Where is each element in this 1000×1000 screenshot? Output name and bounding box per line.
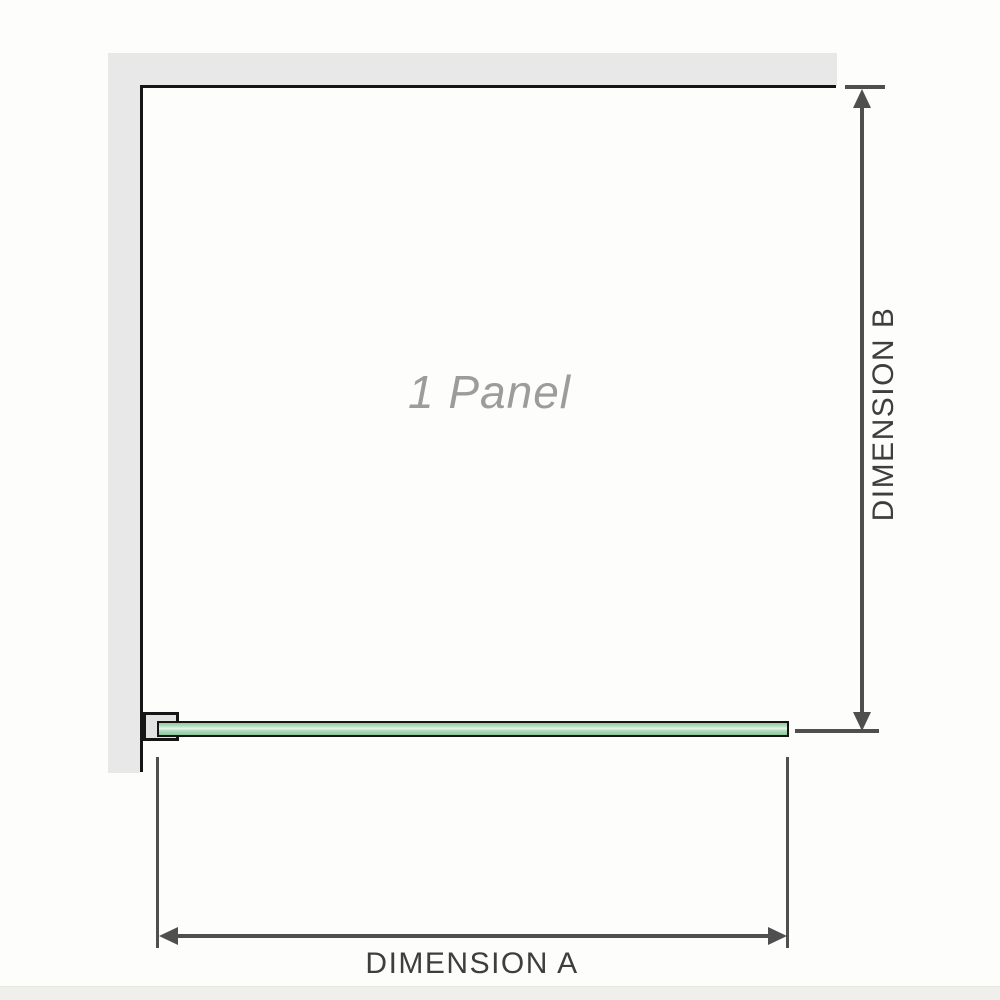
arrow-down-icon	[853, 712, 871, 731]
arrow-up-icon	[853, 89, 871, 108]
arrow-right-icon	[768, 927, 787, 945]
glass-panel-bar	[157, 721, 789, 737]
bottom-edge-band	[0, 986, 1000, 1000]
wall-top	[108, 53, 837, 86]
shower-panel-dimension-diagram: 1 Panel DIMENSION B DIMENSION A	[0, 0, 1000, 1000]
dimension-a-line	[167, 934, 779, 938]
arrow-left-icon	[159, 927, 178, 945]
wall-left	[108, 53, 140, 773]
dimension-b-line	[860, 101, 864, 716]
dimension-a-extension-left	[156, 757, 159, 948]
panel-area: 1 Panel	[143, 88, 836, 712]
dimension-a-extension-right	[786, 757, 789, 948]
dimension-b-label: DIMENSION B	[867, 307, 901, 522]
panel-count-label: 1 Panel	[408, 365, 571, 419]
dimension-a-label: DIMENSION A	[365, 947, 578, 981]
